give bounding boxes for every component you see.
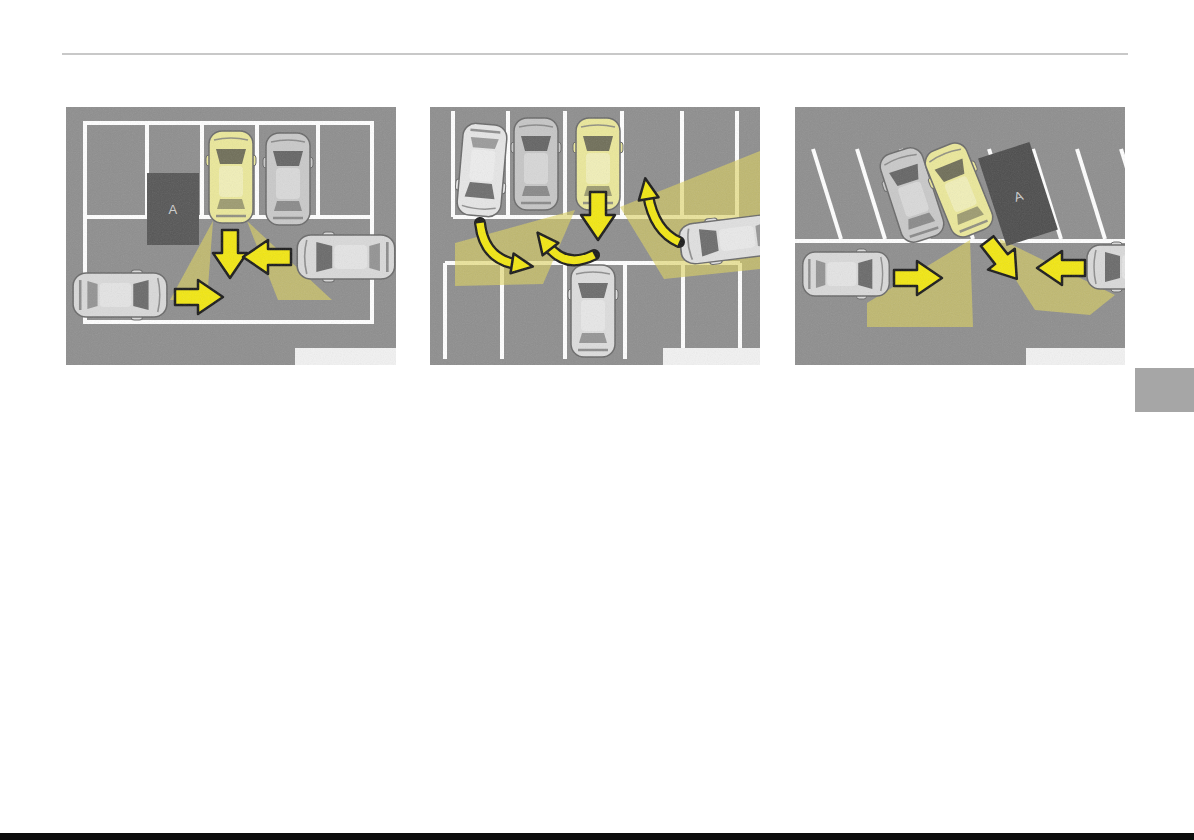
figure-reversing-perpendicular: A [66, 107, 396, 365]
chapter-edge-tab [1135, 368, 1194, 412]
figure-reversing-cross-traffic [430, 107, 760, 365]
header-rule [62, 53, 1128, 55]
page-bottom-strip [0, 833, 1194, 840]
photo-grain [66, 107, 396, 365]
photo-grain [795, 107, 1125, 365]
figure-reversing-angled: A [795, 107, 1125, 365]
photo-grain [430, 107, 760, 365]
